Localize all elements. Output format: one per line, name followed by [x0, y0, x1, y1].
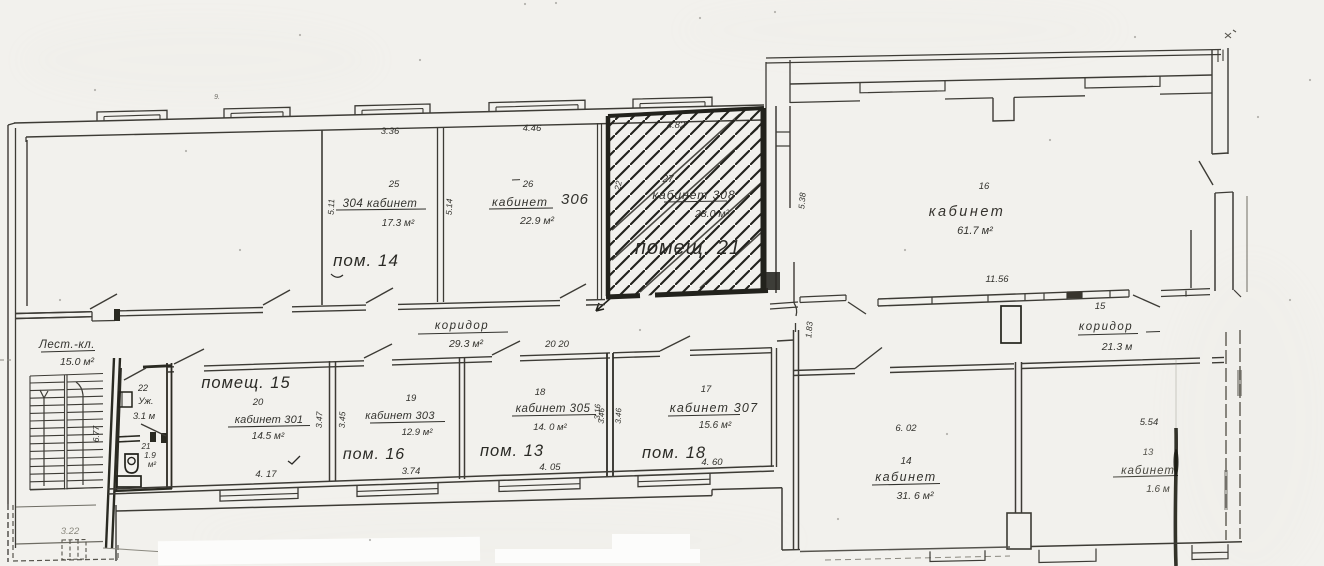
svg-text:17: 17 [701, 384, 712, 395]
svg-text:3.1 м: 3.1 м [133, 411, 156, 422]
svg-text:31. 6 м²: 31. 6 м² [897, 490, 934, 502]
svg-text:3.46: 3.46 [614, 407, 624, 424]
svg-text:1.83: 1.83 [803, 321, 814, 339]
svg-text:20 20: 20 20 [544, 339, 569, 350]
svg-text:пом. 14: пом. 14 [333, 251, 399, 270]
svg-text:кабинет 305: кабинет 305 [516, 403, 591, 415]
svg-text:3.46: 3.46 [597, 407, 607, 424]
svg-text:3.36: 3.36 [381, 126, 400, 137]
svg-text:3.45: 3.45 [337, 411, 348, 428]
svg-text:16: 16 [979, 181, 990, 192]
svg-text:22.9 м²: 22.9 м² [519, 215, 555, 227]
svg-text:21.3 м: 21.3 м [1101, 341, 1133, 353]
svg-text:14: 14 [900, 456, 912, 467]
svg-text:15.0 м²: 15.0 м² [60, 356, 95, 368]
svg-text:12.9 м²: 12.9 м² [402, 427, 434, 438]
svg-text:4. 60: 4. 60 [701, 457, 723, 468]
svg-text:26: 26 [522, 179, 534, 190]
svg-text:3.47: 3.47 [314, 411, 325, 428]
svg-text:5.11: 5.11 [326, 198, 337, 215]
svg-text:13: 13 [1143, 447, 1154, 458]
svg-text:4.82: 4.82 [667, 120, 686, 131]
svg-text:1.6 м: 1.6 м [1146, 484, 1170, 495]
svg-text:Уж.: Уж. [137, 396, 153, 407]
svg-text:пом. 16: пом. 16 [343, 446, 405, 463]
svg-text:19: 19 [406, 393, 417, 404]
svg-text:304 кабинет: 304 кабинет [343, 198, 418, 210]
svg-text:20: 20 [252, 397, 264, 408]
svg-text:15: 15 [1095, 301, 1106, 312]
svg-text:коридор: коридор [435, 320, 489, 332]
svg-text:14. 0 м²: 14. 0 м² [533, 422, 567, 433]
svg-text:пом. 13: пом. 13 [480, 442, 544, 460]
svg-text:кабинет 307: кабинет 307 [670, 401, 758, 415]
svg-text:22: 22 [612, 180, 624, 192]
svg-text:4. 05: 4. 05 [539, 462, 561, 473]
svg-text:кабинет 301: кабинет 301 [235, 414, 303, 426]
svg-text:3.22: 3.22 [61, 526, 80, 537]
svg-text:17.3 м²: 17.3 м² [382, 218, 415, 229]
svg-text:коридор: коридор [1079, 321, 1133, 333]
svg-text:5.54: 5.54 [1140, 417, 1159, 428]
svg-text:кабинет 308: кабинет 308 [652, 188, 735, 202]
svg-text:м²: м² [148, 460, 156, 469]
svg-text:3.74: 3.74 [402, 466, 421, 477]
svg-text:5.38: 5.38 [796, 192, 807, 210]
svg-text:1.9: 1.9 [144, 450, 156, 460]
svg-text:помещ. 15: помещ. 15 [201, 374, 290, 392]
svg-text:9.: 9. [214, 94, 220, 101]
svg-text:кабинет: кабинет [875, 470, 936, 484]
svg-text:помещ. 21: помещ. 21 [635, 237, 741, 259]
svg-text:25: 25 [388, 179, 400, 190]
svg-text:28.0 м²: 28.0 м² [694, 208, 730, 220]
svg-text:Лест.-кл.: Лест.-кл. [38, 339, 95, 351]
svg-text:61.7 м²: 61.7 м² [957, 225, 993, 237]
svg-text:6. 02: 6. 02 [895, 423, 917, 434]
svg-text:29.3 м²: 29.3 м² [448, 338, 484, 350]
svg-text:5.14: 5.14 [444, 198, 455, 215]
svg-text:кабинет: кабинет [929, 204, 1006, 220]
svg-text:4. 17: 4. 17 [255, 469, 277, 480]
svg-text:15.6 м²: 15.6 м² [699, 420, 732, 431]
svg-text:кабинет 303: кабинет 303 [365, 410, 435, 422]
svg-text:пом. 18: пом. 18 [642, 444, 706, 462]
svg-text:4.46: 4.46 [523, 123, 542, 134]
svg-text:кабинет: кабинет [492, 195, 548, 209]
svg-text:6.77: 6.77 [91, 425, 101, 442]
svg-text:14.5 м²: 14.5 м² [252, 431, 285, 442]
svg-text:18: 18 [535, 387, 546, 398]
svg-text:27: 27 [661, 174, 674, 185]
svg-text:306: 306 [561, 191, 589, 208]
svg-text:22: 22 [137, 383, 148, 393]
svg-text:11.56: 11.56 [985, 274, 1009, 285]
svg-text:кабинет: кабинет [1121, 465, 1175, 477]
